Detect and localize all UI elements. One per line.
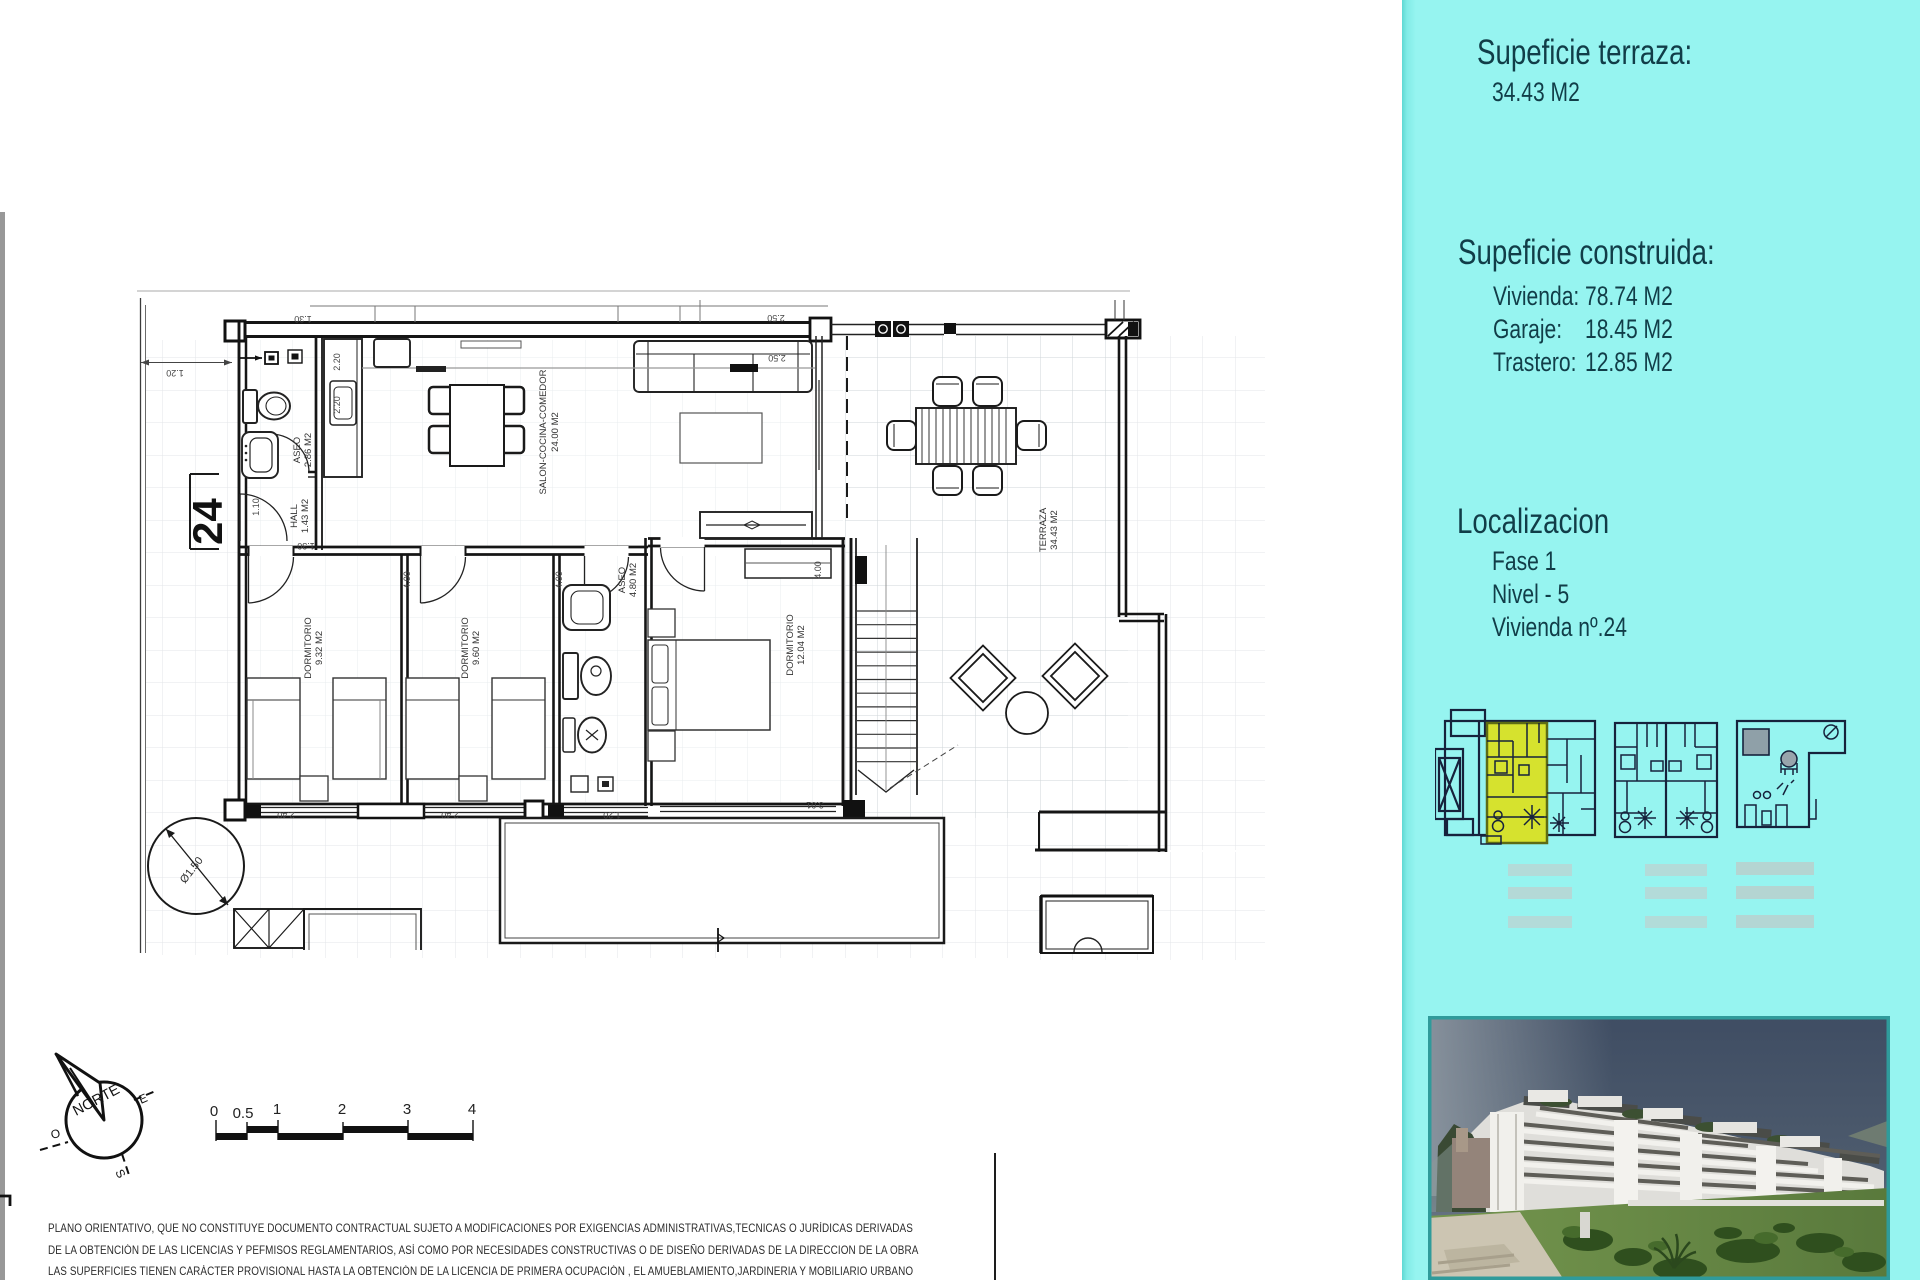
svg-text:O: O [49, 1126, 62, 1142]
svg-text:1.30: 1.30 [297, 541, 315, 551]
svg-text:2.40: 2.40 [277, 810, 295, 820]
svg-text:3: 3 [403, 1101, 411, 1118]
svg-text:2.40: 2.40 [441, 810, 459, 820]
svg-text:SALON-COCINA-COMEDOR: SALON-COCINA-COMEDOR [538, 369, 549, 494]
svg-text:1.43 M2: 1.43 M2 [300, 499, 311, 533]
svg-text:1.20: 1.20 [166, 368, 184, 378]
svg-text:2.50: 2.50 [767, 313, 785, 323]
svg-text:S: S [112, 1167, 128, 1181]
svg-text:4.00: 4.00 [813, 561, 823, 579]
svg-text:ASEO: ASEO [617, 567, 628, 593]
svg-text:24.00 M2: 24.00 M2 [550, 412, 561, 452]
svg-text:1.10: 1.10 [251, 498, 261, 516]
svg-text:34.43 M2: 34.43 M2 [1049, 510, 1060, 550]
svg-text:DORMITORIO: DORMITORIO [460, 617, 471, 679]
svg-text:TERRAZA: TERRAZA [1038, 507, 1049, 552]
svg-text:1.20: 1.20 [603, 810, 621, 820]
svg-text:24: 24 [184, 498, 231, 545]
svg-text:2.86 M2: 2.86 M2 [303, 433, 314, 467]
svg-text:4.00: 4.00 [402, 571, 412, 589]
svg-text:ASEO: ASEO [292, 437, 303, 463]
svg-text:2.50: 2.50 [768, 353, 786, 363]
svg-text:2.20: 2.20 [332, 353, 342, 371]
svg-text:HALL: HALL [289, 504, 300, 528]
svg-text:4: 4 [468, 1101, 476, 1118]
svg-text:12.04 M2: 12.04 M2 [796, 625, 807, 665]
svg-text:2: 2 [338, 1101, 346, 1118]
svg-text:4.80 M2: 4.80 M2 [628, 563, 639, 597]
svg-text:2.20: 2.20 [332, 396, 342, 414]
svg-text:DORMITORIO: DORMITORIO [303, 617, 314, 679]
svg-text:0.5: 0.5 [233, 1105, 254, 1122]
svg-text:9.60 M2: 9.60 M2 [471, 631, 482, 665]
svg-text:3.01: 3.01 [806, 800, 824, 810]
svg-text:0: 0 [210, 1103, 218, 1120]
svg-text:1: 1 [273, 1101, 281, 1118]
svg-text:4.00: 4.00 [554, 571, 564, 589]
svg-text:1.30: 1.30 [294, 314, 312, 324]
svg-text:9.32 M2: 9.32 M2 [314, 631, 325, 665]
svg-text:DORMITORIO: DORMITORIO [785, 614, 796, 676]
